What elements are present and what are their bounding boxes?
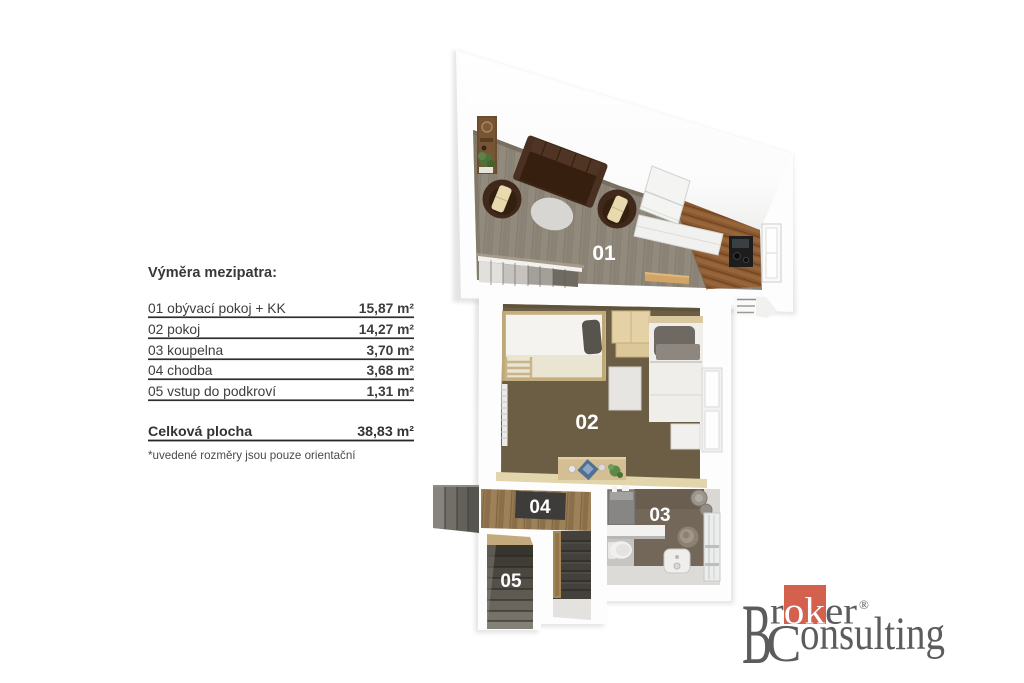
svg-text:05: 05 bbox=[500, 571, 522, 592]
svg-text:38,83 m²: 38,83 m² bbox=[357, 424, 414, 440]
svg-text:3,68 m²: 3,68 m² bbox=[366, 363, 414, 378]
svg-text:04 chodba: 04 chodba bbox=[148, 363, 213, 378]
svg-text:Celková plocha: Celková plocha bbox=[148, 424, 252, 440]
svg-text:15,87 m²: 15,87 m² bbox=[359, 301, 415, 316]
svg-text:03: 03 bbox=[649, 505, 670, 526]
svg-text:14,27 m²: 14,27 m² bbox=[359, 322, 415, 337]
svg-text:01 obývací pokoj + KK: 01 obývací pokoj + KK bbox=[148, 301, 286, 316]
svg-text:01: 01 bbox=[592, 242, 616, 265]
svg-text:C: C bbox=[766, 615, 801, 673]
svg-text:05 vstup do podkroví: 05 vstup do podkroví bbox=[148, 384, 276, 399]
svg-text:02: 02 bbox=[575, 411, 598, 434]
svg-text:1,31 m²: 1,31 m² bbox=[366, 384, 414, 399]
svg-text:02 pokoj: 02 pokoj bbox=[148, 322, 200, 337]
svg-text:3,70 m²: 3,70 m² bbox=[366, 343, 414, 358]
svg-text:Výměra mezipatra:: Výměra mezipatra: bbox=[148, 265, 277, 281]
svg-text:03 koupelna: 03 koupelna bbox=[148, 343, 224, 358]
svg-text:04: 04 bbox=[529, 497, 551, 518]
svg-text:onsulting: onsulting bbox=[800, 608, 945, 660]
svg-text:*uvedené rozměry jsou pouze or: *uvedené rozměry jsou pouze orientační bbox=[148, 449, 356, 462]
